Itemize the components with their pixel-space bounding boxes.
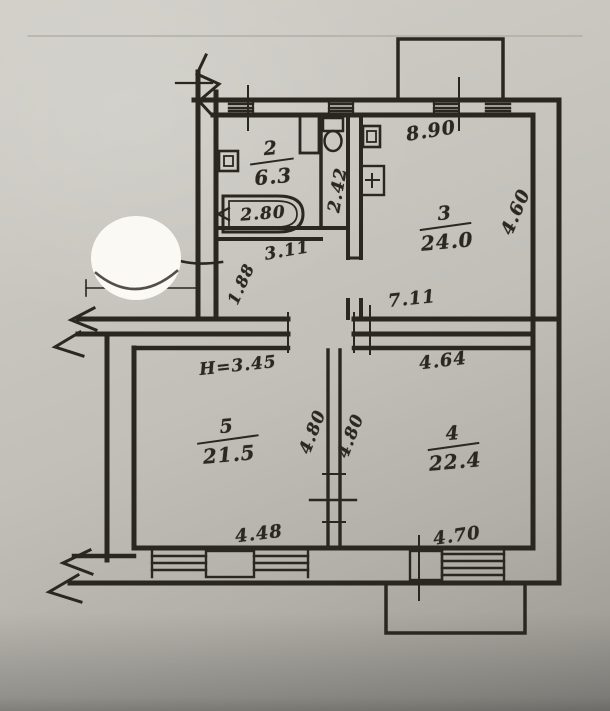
- bottom-block-walls: [70, 334, 559, 583]
- dim-bathtub: 2.80: [240, 202, 287, 225]
- window-hatch-top: [229, 78, 510, 130]
- kitchen-sink-icon: [363, 126, 380, 147]
- balcony-top-outline: [398, 39, 503, 99]
- room-2-label: 2 6.3: [248, 136, 296, 191]
- balcony-bottom-outline: [386, 583, 525, 633]
- room-4-area: 22.4: [428, 447, 483, 476]
- scanned-floor-plan-photo: 2 6.3 3 24.0 5 21.5 4 22.4 8.90 4.60 2.4…: [0, 0, 610, 711]
- sink-icon: [219, 151, 238, 171]
- middle-wall: [78, 306, 559, 354]
- floor-plan-drawing: [0, 0, 610, 711]
- room-4-label: 4 22.4: [426, 420, 483, 475]
- duct-shaft: [300, 115, 319, 153]
- stove-icon: [361, 166, 384, 195]
- room-2-area: 6.3: [250, 163, 296, 191]
- round-paper-sticker: [91, 216, 181, 300]
- toilet-icon: [323, 118, 343, 151]
- room-3-area: 24.0: [420, 227, 475, 256]
- room-5-label: 5 21.5: [195, 413, 261, 469]
- room-3-label: 3 24.0: [418, 200, 475, 255]
